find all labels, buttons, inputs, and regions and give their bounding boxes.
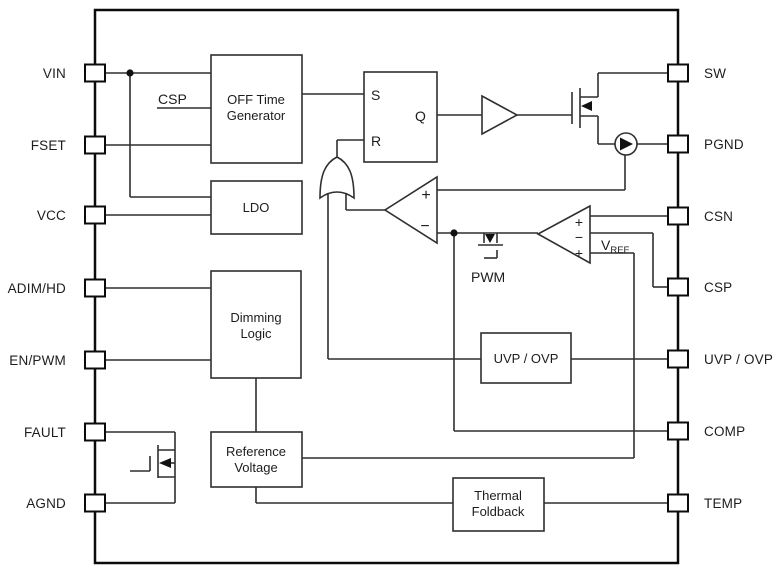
pin-csp [668, 279, 688, 296]
block-off-time-generator: OFF Time Generator [211, 55, 302, 163]
error-amp-plus-top: + [575, 214, 583, 230]
pin-comp [668, 423, 688, 440]
left-pin-labels: VIN FSET VCC ADIM/HD EN/PWM FAULT AGND [8, 66, 66, 511]
pin-adim-hd [85, 280, 105, 297]
pin-vin [85, 65, 105, 82]
pin-uvp-ovp [668, 351, 688, 368]
pin-fault [85, 424, 105, 441]
power-mosfet-icon [572, 88, 598, 128]
block-label: Dimming [230, 310, 281, 325]
wire-or-inputs [328, 193, 385, 359]
block-reference-voltage: Reference Voltage [211, 432, 302, 487]
pin-label-en-pwm: EN/PWM [9, 353, 66, 368]
vref-subscript: REF [610, 245, 629, 256]
block-dimming-logic: Dimming Logic [211, 271, 301, 378]
functional-block-diagram: + − + − + S R Q OFF Time Generator [0, 0, 784, 576]
current-sense-icon [615, 133, 637, 155]
pin-label-uvp-ovp: UVP / OVP [704, 352, 773, 367]
comparator-minus-sign: − [420, 218, 429, 235]
error-amp-minus: − [575, 229, 583, 245]
block-label: OFF Time [227, 92, 285, 107]
error-amp-plus-bottom: + [575, 245, 583, 261]
pin-label-csp: CSP [704, 280, 732, 295]
error-amp-icon: + − + [538, 206, 590, 263]
diagram-canvas: + − + − + S R Q OFF Time Generator [0, 0, 784, 576]
pin-agnd [85, 495, 105, 512]
pwm-net-label: PWM [471, 269, 505, 285]
or-gate-icon [320, 157, 354, 198]
pin-label-sw: SW [704, 66, 726, 81]
wire-r-input [337, 140, 364, 157]
csp-net-label: CSP [158, 91, 187, 107]
comparator-plus-sign: + [421, 187, 430, 204]
block-ldo: LDO [211, 181, 302, 234]
pin-label-vcc: VCC [37, 208, 66, 223]
block-label: Logic [240, 326, 272, 341]
wire-vin [105, 69, 211, 197]
pin-label-fault: FAULT [24, 425, 66, 440]
pin-label-comp: COMP [704, 424, 745, 439]
wire-fault-mosfet [105, 432, 175, 503]
pin-label-adim-hd: ADIM/HD [8, 281, 66, 296]
pin-label-vin: VIN [43, 66, 66, 81]
block-label: Reference [226, 444, 286, 459]
pin-pgnd [668, 136, 688, 153]
latch-r-label: R [371, 133, 381, 149]
sr-latch: S R Q [364, 72, 437, 162]
pin-temp [668, 495, 688, 512]
wire-comparator-plus [437, 155, 625, 190]
pin-label-pgnd: PGND [704, 137, 744, 152]
block-label: LDO [243, 200, 270, 215]
main-comparator-icon: + − [385, 177, 437, 243]
pin-label-agnd: AGND [26, 496, 66, 511]
junction-dot [450, 229, 457, 236]
pin-vcc [85, 207, 105, 224]
block-label: Foldback [472, 504, 525, 519]
block-label: Thermal [474, 488, 522, 503]
fault-mosfet-icon [130, 445, 175, 478]
pin-label-temp: TEMP [704, 496, 742, 511]
pin-label-fset: FSET [31, 138, 66, 153]
block-label: Generator [227, 108, 286, 123]
pin-sw [668, 65, 688, 82]
pin-en-pwm [85, 352, 105, 369]
block-uvp-ovp: UVP / OVP [481, 333, 571, 383]
wire-vref [302, 253, 634, 458]
junction-dot [126, 69, 133, 76]
right-pin-labels: SW PGND CSN CSP UVP / OVP COMP TEMP [704, 66, 773, 511]
wire-sw [598, 73, 668, 97]
pin-csn [668, 208, 688, 225]
block-label: Voltage [234, 460, 277, 475]
latch-s-label: S [371, 87, 380, 103]
pwm-switch-icon [478, 233, 503, 258]
pin-fset [85, 137, 105, 154]
latch-q-label: Q [415, 108, 426, 124]
block-thermal-foldback: Thermal Foldback [453, 478, 544, 531]
gate-driver-buffer-icon [482, 96, 517, 134]
pin-label-csn: CSN [704, 209, 733, 224]
block-label: UVP / OVP [494, 351, 559, 366]
